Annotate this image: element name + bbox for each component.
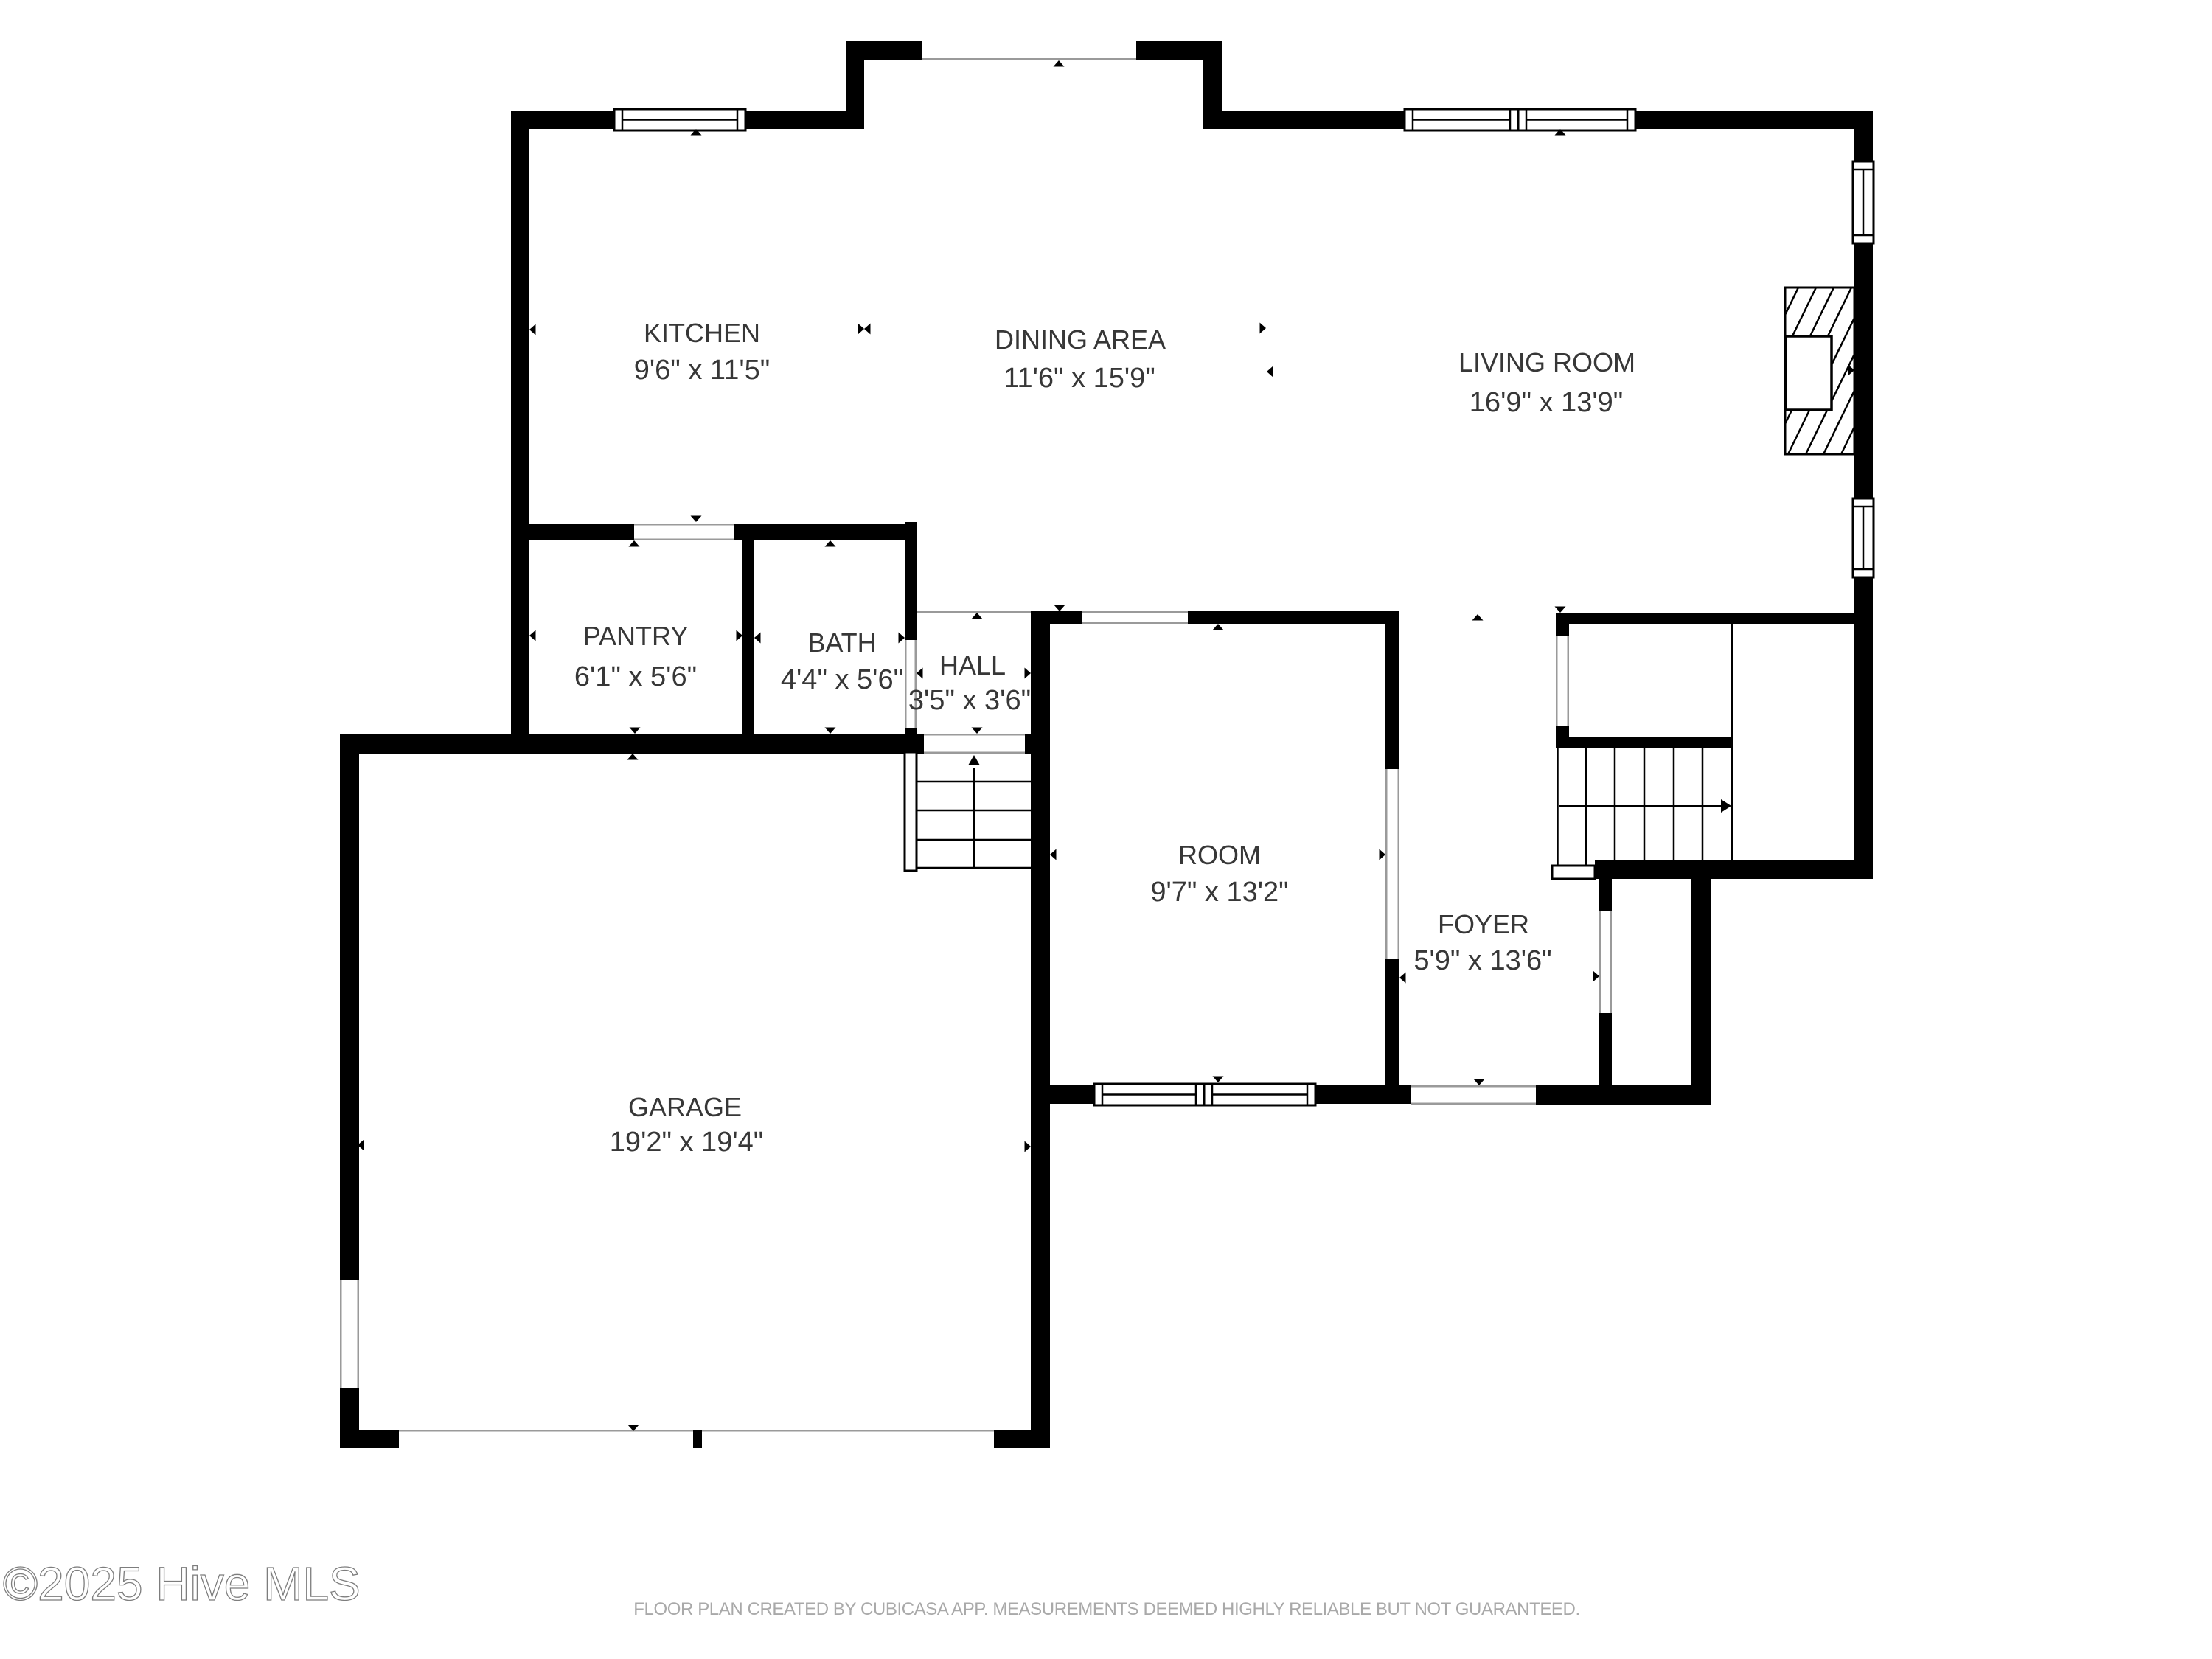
- svg-text:9'6" x 11'5": 9'6" x 11'5": [634, 355, 770, 386]
- svg-text:DINING AREA: DINING AREA: [995, 324, 1166, 355]
- svg-text:6'1" x 5'6": 6'1" x 5'6": [574, 661, 697, 692]
- svg-text:FOYER: FOYER: [1438, 909, 1529, 939]
- svg-text:FLOOR PLAN CREATED BY CUBICASA: FLOOR PLAN CREATED BY CUBICASA APP. MEAS…: [633, 1599, 1580, 1619]
- svg-text:5'9" x 13'6": 5'9" x 13'6": [1413, 945, 1551, 976]
- svg-text:PANTRY: PANTRY: [583, 621, 689, 651]
- svg-text:9'7" x 13'2": 9'7" x 13'2": [1150, 877, 1288, 908]
- svg-text:4'4" x 5'6": 4'4" x 5'6": [781, 664, 903, 695]
- svg-text:BATH: BATH: [807, 627, 876, 658]
- svg-text:11'6" x 15'9": 11'6" x 15'9": [1004, 363, 1155, 394]
- svg-text:19'2" x 19'4": 19'2" x 19'4": [610, 1127, 763, 1158]
- svg-text:16'9" x 13'9": 16'9" x 13'9": [1470, 387, 1623, 418]
- svg-text:LIVING ROOM: LIVING ROOM: [1458, 347, 1635, 378]
- svg-text:HALL: HALL: [939, 650, 1006, 681]
- svg-text:©2025 Hive MLS: ©2025 Hive MLS: [3, 1557, 361, 1610]
- svg-text:3'5" x 3'6": 3'5" x 3'6": [908, 685, 1031, 716]
- svg-text:ROOM: ROOM: [1178, 840, 1261, 870]
- svg-text:KITCHEN: KITCHEN: [644, 318, 760, 348]
- svg-text:GARAGE: GARAGE: [628, 1092, 742, 1122]
